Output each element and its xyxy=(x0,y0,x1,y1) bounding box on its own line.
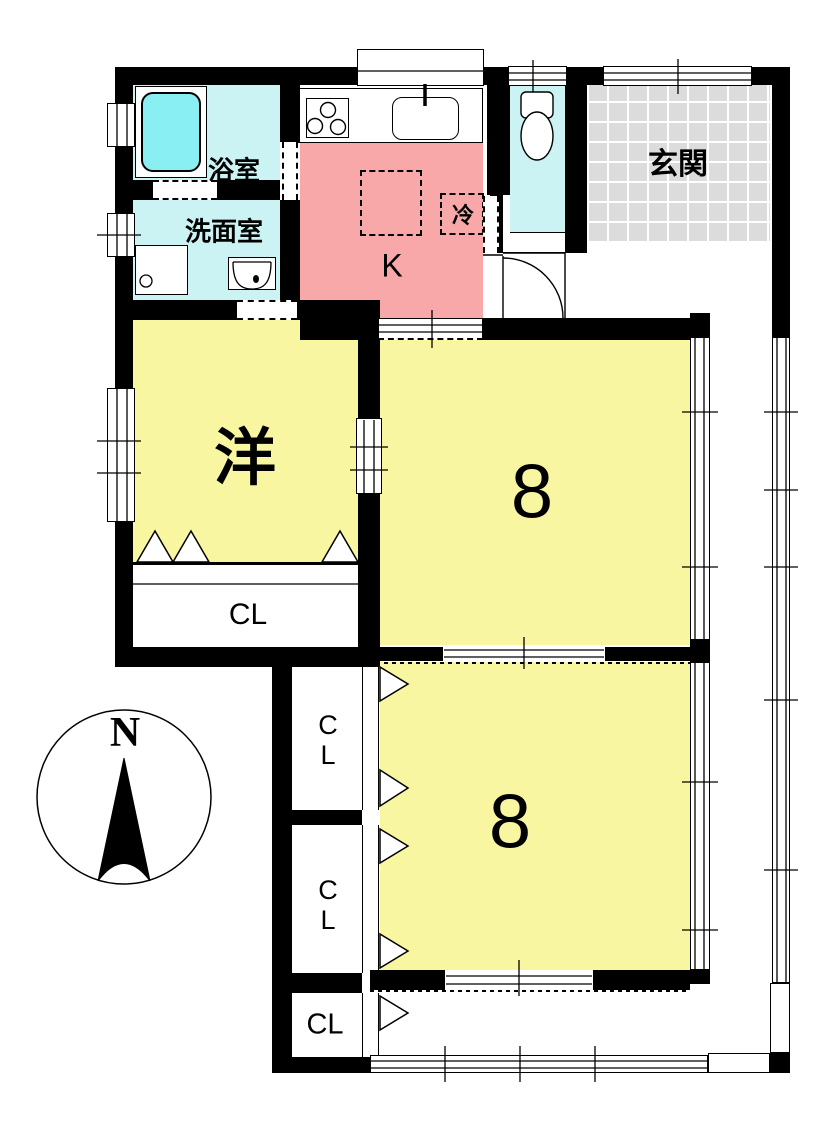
window-tatami-lower-east xyxy=(690,662,710,970)
entrance-label: 玄関 xyxy=(648,139,708,183)
door-western-to-tatami[interactable] xyxy=(356,418,382,494)
wall xyxy=(483,318,708,340)
window-veranda-east xyxy=(772,337,790,983)
wall xyxy=(690,313,710,340)
wall xyxy=(565,85,587,253)
bathtub xyxy=(141,92,201,172)
washroom-label: 洗面室 xyxy=(185,212,263,249)
wall xyxy=(772,85,790,337)
wall xyxy=(358,492,380,648)
door-washroom-western[interactable] xyxy=(237,300,297,320)
wall xyxy=(483,67,510,85)
wall xyxy=(115,647,380,667)
kitchen-sink xyxy=(392,97,459,140)
wall xyxy=(280,85,300,142)
wall xyxy=(297,300,360,320)
closet-door-strip-2 xyxy=(362,825,379,973)
wall xyxy=(690,640,710,662)
wall xyxy=(690,970,710,984)
washing-machine-pan xyxy=(135,245,188,295)
entrance-door[interactable] xyxy=(603,66,752,86)
closet-upper-label: CL xyxy=(317,710,339,770)
western-room-label: 洋 xyxy=(214,407,276,497)
washbasin xyxy=(228,257,276,290)
toilet-door[interactable] xyxy=(503,233,565,253)
floor-plan: 浴室 洗面室 K 冷 玄関 洋 8 8 CL CL CL CL N xyxy=(0,0,832,1131)
wall xyxy=(133,180,153,200)
kitchen-label: K xyxy=(381,248,402,285)
tatami-lower-label: 8 xyxy=(489,779,531,866)
wall xyxy=(272,973,362,993)
wall xyxy=(115,67,133,105)
window-washroom-west xyxy=(107,213,135,257)
window-toilet-north xyxy=(508,66,567,86)
compass-north-label: N xyxy=(110,709,140,757)
stove xyxy=(306,98,349,138)
closet-door-strip-3 xyxy=(362,993,379,1057)
window-western-room-west xyxy=(107,388,135,522)
bathroom-label: 浴室 xyxy=(208,151,260,188)
kitchen-table-outline xyxy=(360,170,422,236)
closet-middle-label: CL xyxy=(317,875,339,935)
wall xyxy=(115,67,360,85)
veranda-post-east xyxy=(770,983,790,1053)
wall xyxy=(593,970,690,990)
wall xyxy=(300,318,358,340)
wall xyxy=(370,970,445,990)
wall xyxy=(272,810,362,825)
refrigerator-label: 冷 xyxy=(452,198,474,230)
wall xyxy=(358,647,443,661)
closet-lower-label: CL xyxy=(306,1009,343,1042)
wall xyxy=(133,300,237,320)
wall xyxy=(770,1053,790,1073)
room-tatami-lower xyxy=(380,662,690,970)
wall xyxy=(358,300,380,420)
window-veranda-south xyxy=(370,1055,708,1073)
closet-western-label: CL xyxy=(229,598,267,632)
wall xyxy=(115,145,133,215)
window-bathroom-west xyxy=(107,103,135,147)
sliding-door-kitchen-tatami[interactable] xyxy=(378,318,483,340)
kitchen-bay-window xyxy=(357,49,484,86)
compass-needle-icon xyxy=(98,758,150,881)
window-tatami-upper-east xyxy=(690,337,710,640)
veranda-post-south xyxy=(708,1053,770,1073)
hallway xyxy=(483,253,772,318)
wall xyxy=(115,520,133,667)
wall xyxy=(280,200,300,300)
sliding-door-between-tatami[interactable] xyxy=(443,645,605,661)
closet-door-strip-1 xyxy=(362,662,379,810)
wall xyxy=(750,67,790,85)
room-toilet xyxy=(510,85,565,233)
wall xyxy=(272,662,292,1073)
sliding-door-tatami-lower-south[interactable] xyxy=(445,970,593,990)
tatami-upper-label: 8 xyxy=(511,449,553,536)
door-kitchen-hall[interactable] xyxy=(483,196,499,253)
wall xyxy=(605,647,690,661)
wall xyxy=(115,255,133,390)
wall xyxy=(487,85,510,195)
wall xyxy=(272,1057,370,1073)
door-washroom-kitchen[interactable] xyxy=(282,142,298,200)
